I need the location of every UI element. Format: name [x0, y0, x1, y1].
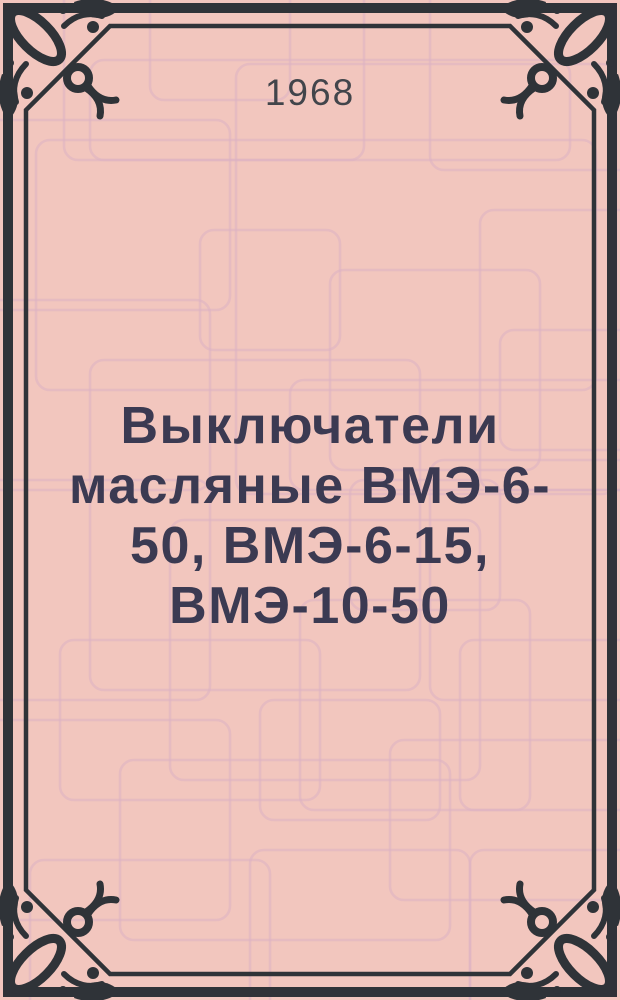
title-line-2: масляные ВМЭ-6-	[20, 456, 600, 516]
corner-ornament-bottom-right	[500, 880, 620, 1000]
title-line-3: 50, ВМЭ-6-15,	[20, 516, 600, 576]
title-line-4: ВМЭ-10-50	[20, 576, 600, 636]
book-cover: 1968 Выключатели масляные ВМЭ-6- 50, ВМЭ…	[0, 0, 620, 1000]
book-title: Выключатели масляные ВМЭ-6- 50, ВМЭ-6-15…	[20, 396, 600, 636]
title-line-1: Выключатели	[20, 396, 600, 456]
year-label: 1968	[0, 72, 620, 114]
corner-ornament-bottom-left	[0, 880, 120, 1000]
